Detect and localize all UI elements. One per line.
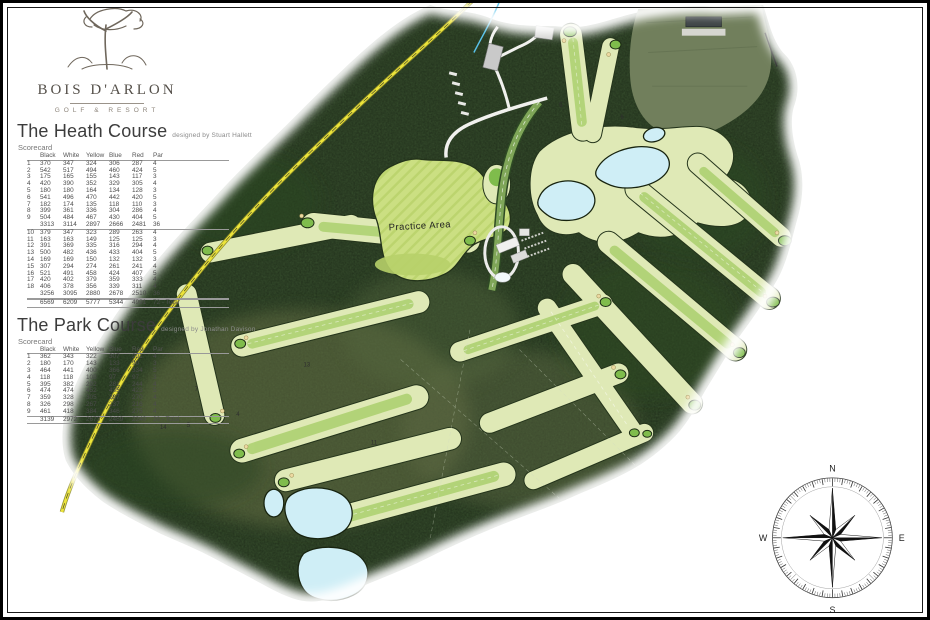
scorecard-row: 135004824364334045 — [27, 250, 229, 257]
scorecard-cell — [27, 222, 40, 229]
scorecard-row: 34644414003663345 — [27, 368, 229, 375]
col-hole — [27, 153, 40, 160]
scorecard-cell: 4 — [153, 277, 193, 284]
scorecard-cell: 4 — [153, 354, 193, 361]
scorecard-cell: 2666 — [109, 222, 132, 229]
scorecard-cell — [27, 300, 40, 307]
brand-logo: BOIS D'ARLON GOLF & RESORT — [17, 5, 197, 114]
scorecard-cell: 4 — [153, 409, 193, 416]
park-scorecard: Black White Yellow Blue Red Par 13623433… — [27, 347, 229, 425]
scorecard-row: 83993613363042864 — [27, 208, 229, 215]
col-blue: Blue — [109, 153, 132, 160]
scorecard-cell: 5 — [153, 195, 193, 202]
scorecard-cell: 2897 — [86, 222, 109, 229]
scorecard-cell: 4 — [153, 382, 193, 389]
brand-rule — [70, 103, 144, 104]
col-white: White — [63, 347, 86, 354]
compass-west-label: W — [759, 533, 768, 543]
scorecard-cell: 3313 — [40, 222, 63, 229]
scorecard-row: 111631631491251253 — [27, 237, 229, 244]
svg-text:13: 13 — [304, 362, 311, 368]
scorecard-cell: 4 — [153, 208, 193, 215]
scorecard-cell: 5777 — [86, 300, 109, 307]
scorecard-cell: 4 — [153, 395, 193, 402]
heath-scorecard-label: Scorecard — [18, 143, 229, 152]
farm-building — [686, 17, 722, 27]
scorecard-cell: 3 — [153, 361, 193, 368]
scorecard-row: 13623433223072914 — [27, 354, 229, 361]
scorecard-row: 153072942742612414 — [27, 264, 229, 271]
scorecard-cell: 3 — [153, 174, 193, 181]
scorecard-cell: 36 — [153, 291, 193, 298]
scorecard-cell — [27, 291, 40, 298]
scorecard-cell: 9 — [27, 409, 40, 416]
scorecard-cell: 4 — [153, 264, 193, 271]
scorecard-cell: 6569 — [40, 300, 63, 307]
scorecard-cell: 2510 — [132, 291, 153, 298]
col-par: Par — [153, 153, 193, 160]
scorecard-row: 83262982672372164 — [27, 402, 229, 409]
scorecard-cell: 3 — [153, 188, 193, 195]
scorecard-cell: 9 — [27, 215, 40, 222]
scorecard-header: Black White Yellow Blue Red Par — [27, 347, 229, 355]
scorecard-cell: 5344 — [109, 300, 132, 307]
brand-tagline: GOLF & RESORT — [17, 107, 197, 114]
scorecard-row: 73593283052872704 — [27, 395, 229, 402]
col-yellow: Yellow — [86, 153, 109, 160]
scorecard-header: Black White Yellow Blue Red Par — [27, 153, 229, 161]
scorecard-cell: 36 - Total — [153, 417, 193, 424]
scorecard-cell: 5 — [153, 250, 193, 257]
scorecard-cell: 5 — [153, 271, 193, 278]
scorecard-cell: 5 — [153, 168, 193, 175]
col-black: Black — [40, 347, 63, 354]
col-black: Black — [40, 153, 63, 160]
scorecard-cell: 36 — [153, 222, 193, 229]
scorecard-cell: 6209 — [63, 300, 86, 307]
scorecard-subtotal-row: 3256309528802678251036 — [27, 291, 229, 299]
scorecard-subtotal-row: 3313311428972666248136 — [27, 222, 229, 230]
svg-text:11: 11 — [371, 441, 378, 447]
scorecard-row: 2180170143133903 — [27, 361, 229, 368]
scorecard-row: 44203903523293054 — [27, 181, 229, 188]
scorecard-cell: 3 — [153, 237, 193, 244]
scorecard-row: 95044844674304045 — [27, 215, 229, 222]
col-red: Red — [132, 347, 153, 354]
heath-course-block: The Heath Coursedesigned by Stuart Halle… — [17, 121, 229, 308]
scorecard-cell: 4 — [153, 243, 193, 250]
scorecard-cell: 3 — [153, 202, 193, 209]
heath-scorecard: Black White Yellow Blue Red Par 13703473… — [27, 153, 229, 308]
park-scorecard-label: Scorecard — [18, 337, 229, 346]
scorecard-cell: 4 — [153, 161, 193, 168]
pine-tree-icon — [32, 5, 182, 75]
park-course-designer: designed by Jonathan Davison — [161, 326, 256, 333]
scorecard-cell: 384 — [86, 409, 109, 416]
scorecard-row: 31751651551431173 — [27, 174, 229, 181]
scorecard-cell: 2489 — [109, 417, 132, 424]
scorecard-row: 184063783563393114 — [27, 284, 229, 291]
scorecard-cell: 418 — [63, 409, 86, 416]
scorecard-cell: 2880 — [86, 291, 109, 298]
scorecard-cell — [27, 417, 40, 424]
scorecard-row: 165214914584244075 — [27, 271, 229, 278]
scorecard-row: 65414964704424205 — [27, 195, 229, 202]
col-red: Red — [132, 153, 153, 160]
col-white: White — [63, 153, 86, 160]
scorecard-cell: 4 — [153, 181, 193, 188]
scorecard-cell: 5 — [153, 388, 193, 395]
scorecard-row: 51801801641341283 — [27, 188, 229, 195]
scorecard-cell: 18 — [27, 284, 40, 291]
park-course-title: The Park Coursedesigned by Jonathan Davi… — [17, 315, 229, 336]
scorecard-row: 71821741351181103 — [27, 202, 229, 209]
scorecard-cell: 2972 — [63, 417, 86, 424]
scorecard-row: 411811810897973 — [27, 375, 229, 382]
scorecard-cell: 346 — [109, 409, 132, 416]
heath-course-title: The Heath Coursedesigned by Stuart Halle… — [17, 121, 229, 142]
col-par: Par — [153, 347, 193, 354]
scorecard-cell: 4 — [153, 402, 193, 409]
scorecard-cell: 275 — [132, 409, 153, 416]
heath-course-designer: designed by Stuart Hallett — [172, 132, 252, 139]
scorecard-cell: 4 — [153, 230, 193, 237]
col-blue: Blue — [109, 347, 132, 354]
scorecard-cell: 5 — [153, 368, 193, 375]
scorecard-cell: 72 - Total — [153, 300, 193, 307]
scorecard-cell: 2673 — [86, 417, 109, 424]
scorecard-row: 103793473232892634 — [27, 230, 229, 237]
scorecard-cell: 2240 — [132, 417, 153, 424]
scorecard-row: 25425174944604245 — [27, 168, 229, 175]
svg-text:14: 14 — [160, 425, 167, 431]
scorecard-row: 13703473243062874 — [27, 161, 229, 168]
scorecard-cell: 3114 — [63, 222, 86, 229]
compass-south-label: S — [829, 605, 835, 615]
scorecard-cell: 4991 — [132, 300, 153, 307]
scorecard-cell: 461 — [40, 409, 63, 416]
brand-name: BOIS D'ARLON — [17, 82, 197, 99]
scorecard-total-row: 6569620957775344499172 - Total — [27, 299, 229, 308]
scorecard-row: 94614183843462754 — [27, 409, 229, 416]
scorecard-cell: 3139 — [40, 417, 63, 424]
scorecard-cell: 2481 — [132, 222, 153, 229]
scorecard-row: 141691691501321323 — [27, 257, 229, 264]
info-panel: BOIS D'ARLON GOLF & RESORT The Heath Cou… — [17, 5, 229, 424]
scorecard-row: 53953822922812444 — [27, 382, 229, 389]
scorecard-cell: 2678 — [109, 291, 132, 298]
col-hole — [27, 347, 40, 354]
scorecard-total-row: 3139297226732489224036 - Total — [27, 416, 229, 425]
scorecard-cell: 3095 — [63, 291, 86, 298]
scorecard-row: 123913693353162944 — [27, 243, 229, 250]
scorecard-cell: 3 — [153, 375, 193, 382]
park-course-block: The Park Coursedesigned by Jonathan Davi… — [17, 315, 229, 425]
scorecard-cell: 3256 — [40, 291, 63, 298]
scorecard-cell: 3 — [153, 257, 193, 264]
scorecard-row: 174204023793593334 — [27, 277, 229, 284]
compass-rose: N E S W — [759, 463, 905, 615]
compass-north-label: N — [829, 463, 835, 473]
golf-course-plan-page: Practice Area 5 6 13 4 5 14 11 7 N E S W — [0, 0, 930, 620]
compass-east-label: E — [899, 533, 905, 543]
scorecard-row: 64744744524354235 — [27, 388, 229, 395]
col-yellow: Yellow — [86, 347, 109, 354]
